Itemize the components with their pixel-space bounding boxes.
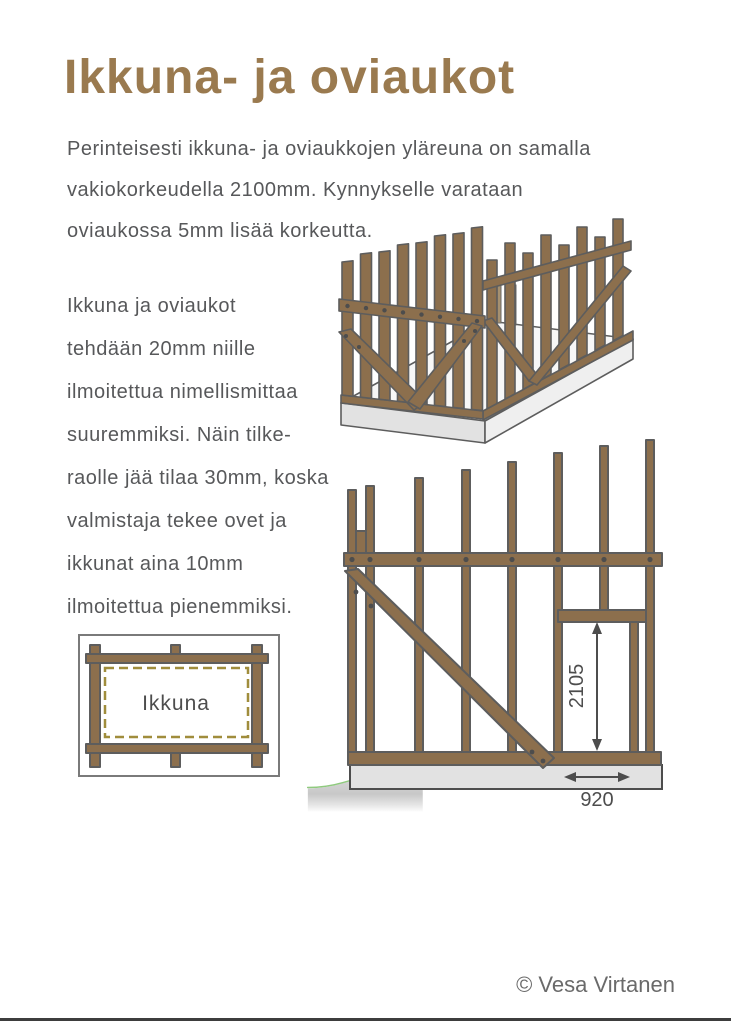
dimension-door-width: 920 — [564, 772, 630, 810]
page-bottom-edge — [0, 1018, 731, 1021]
intro-line: vakiokorkeudella 2100mm. Kynnykselle var… — [67, 179, 523, 202]
window-label: Ikkuna — [142, 692, 210, 715]
body-line: ilmoitettua nimellismittaa — [67, 381, 298, 404]
body-line: raolle jää tilaa 30mm, koska — [67, 467, 329, 490]
blocking — [356, 531, 366, 555]
body-line: ikkunat aina 10mm — [67, 553, 243, 576]
intro-line: Perinteisesti ikkuna- ja oviaukkojen ylä… — [67, 138, 591, 161]
document-page: Ikkuna- ja oviaukot Perinteisesti ikkuna… — [0, 0, 731, 1023]
door-jamb-stud — [630, 622, 638, 752]
body-line: suuremmiksi. Näin tilke- — [67, 424, 291, 447]
door-height-value: 2105 — [566, 664, 588, 709]
body-line: Ikkuna ja oviaukot — [67, 295, 236, 318]
bottom-plate — [348, 752, 661, 765]
left-wall — [339, 227, 485, 419]
page-title: Ikkuna- ja oviaukot — [64, 50, 515, 105]
diagonal-brace — [345, 569, 554, 768]
body-line: ilmoitettua pienemmiksi. — [67, 596, 292, 619]
door-width-value: 920 — [580, 789, 613, 810]
body-line: tehdään 20mm niille — [67, 338, 256, 361]
dimension-door-height: 2105 — [566, 622, 602, 751]
studs — [348, 440, 654, 752]
door-header — [558, 610, 646, 622]
rail — [344, 553, 662, 566]
framing-isometric-illustration — [325, 205, 670, 460]
window-frame-diagram: Ikkuna — [78, 634, 281, 778]
copyright-text: © Vesa Virtanen — [430, 972, 675, 998]
framing-elevation-illustration: 2105 920 — [340, 435, 670, 810]
body-line: valmistaja tekee ovet ja — [67, 510, 287, 533]
